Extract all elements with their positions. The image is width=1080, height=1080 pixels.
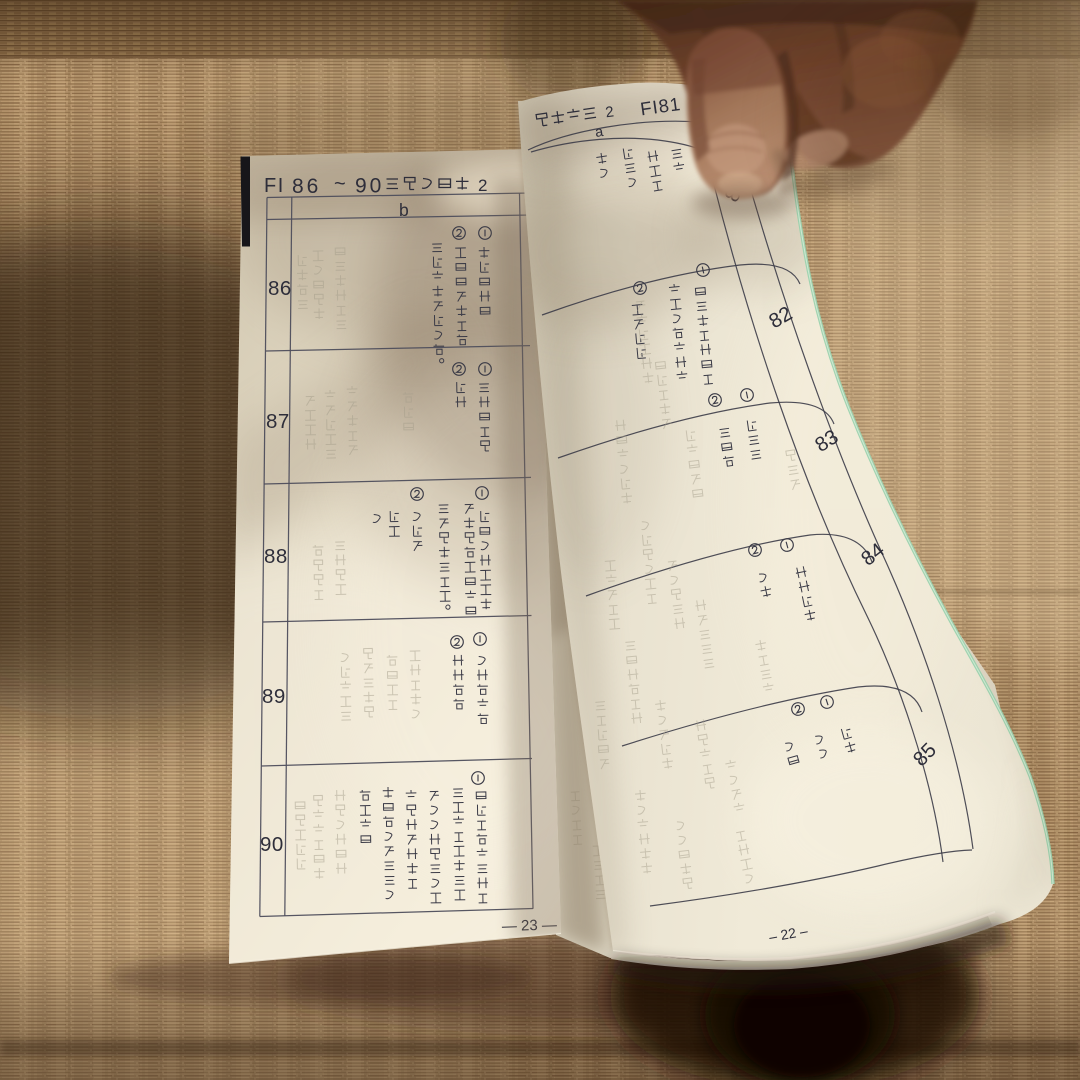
svg-text:89: 89 [262,685,286,708]
svg-text:b: b [399,200,409,220]
svg-text:88: 88 [264,545,288,568]
svg-text:90: 90 [260,833,284,856]
svg-text:90: 90 [355,175,384,198]
svg-text:87: 87 [266,410,290,433]
svg-text:86: 86 [268,277,292,300]
svg-text:86: 86 [292,175,321,198]
svg-text:FI: FI [264,175,285,197]
svg-text:~: ~ [334,173,346,195]
svg-text:2: 2 [478,176,487,195]
